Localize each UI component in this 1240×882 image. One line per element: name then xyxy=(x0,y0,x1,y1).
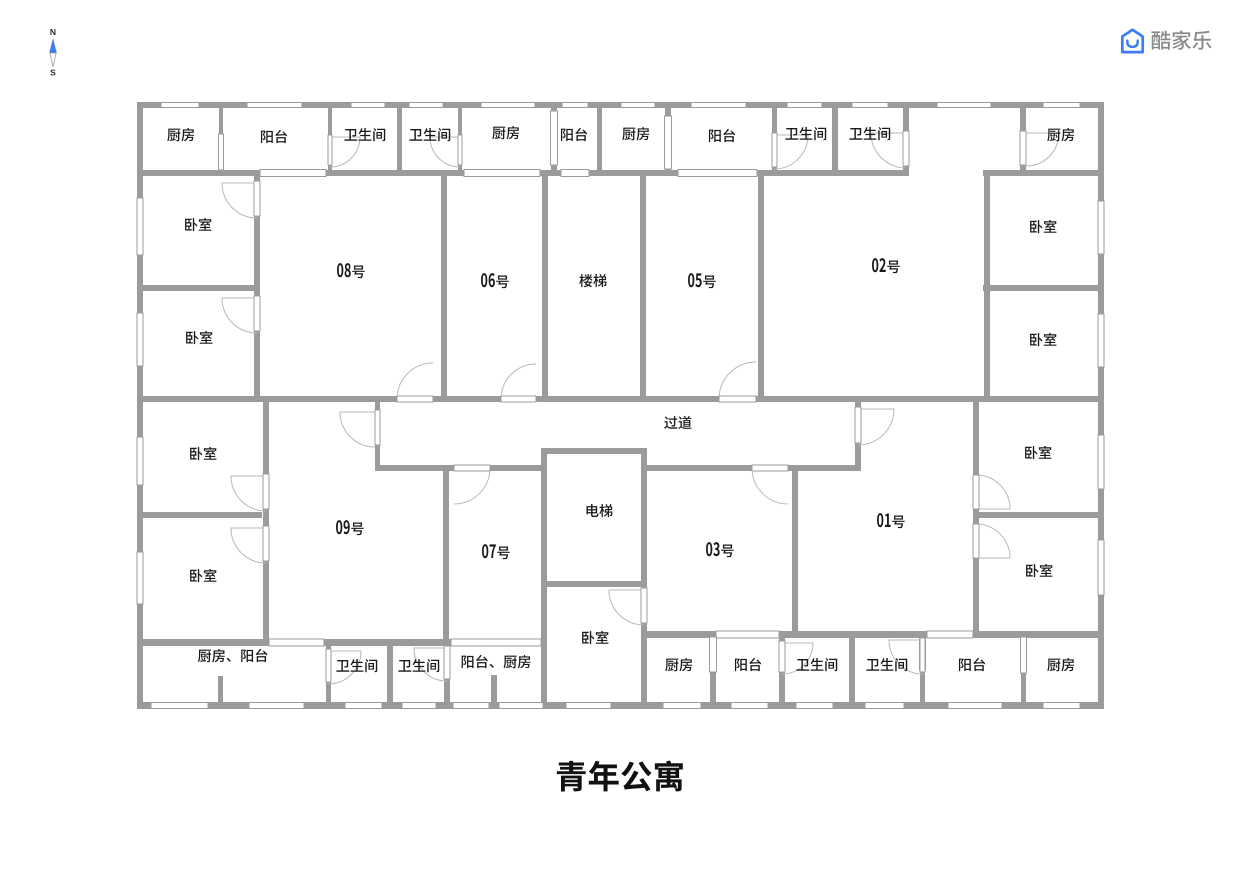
svg-text:S: S xyxy=(50,68,56,78)
svg-text:N: N xyxy=(50,27,56,37)
